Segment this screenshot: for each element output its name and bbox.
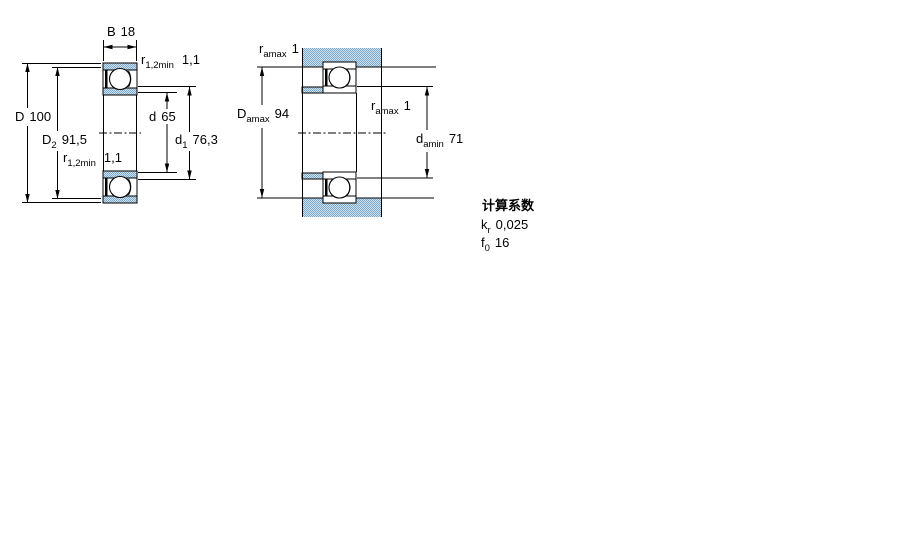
dim-label-fillet-r12-top: r1,2min1,1 (141, 53, 200, 67)
dim-label-width-B: B18 (107, 25, 135, 39)
dim-label-recess-diameter-D2: D291,5 (42, 133, 87, 147)
dim-label-outer-diameter-D: D100 (15, 110, 51, 124)
calculation-factors-heading: 计算系数 (482, 195, 534, 214)
mounting-dimensions-figure (257, 48, 436, 217)
dim-label-bore-diameter-d: d65 (149, 110, 176, 124)
factor-kr: kr0,025 (481, 218, 528, 232)
dim-label-fillet-r12-bottom: r1,2min1,1 (63, 151, 122, 165)
dim-label-fillet-ra-top: ramax1 (259, 42, 299, 56)
bearing-drawing-page: B18 r1,2min1,1 D100 D291,5 r1,2min1,1 d6… (0, 0, 900, 560)
dim-label-shoulder-diameter-d1: d176,3 (175, 133, 218, 147)
dim-label-fillet-ra-mid: ramax1 (371, 99, 411, 113)
bearing-diagrams (0, 0, 900, 560)
dim-label-housing-diameter-Da: Damax94 (237, 107, 289, 121)
factor-f0: f016 (481, 236, 509, 250)
dim-label-shaft-diameter-da: damin71 (416, 132, 463, 146)
